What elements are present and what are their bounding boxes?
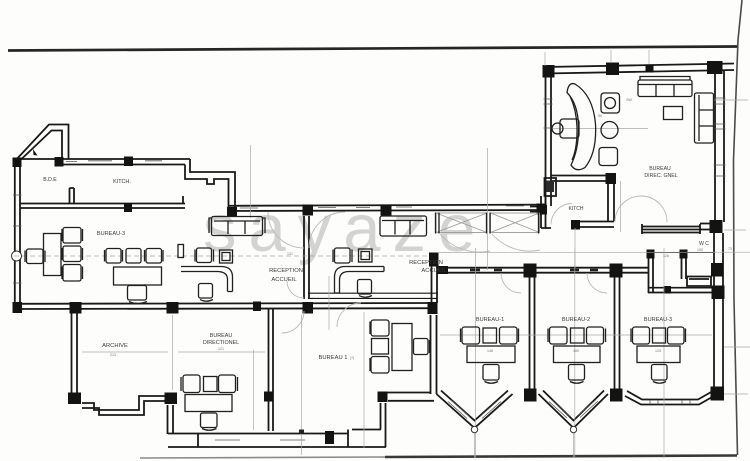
svg-text:(?): (?): [350, 356, 354, 360]
svg-text:SW: SW: [626, 98, 632, 102]
svg-text:ACCUEIL: ACCUEIL: [421, 268, 447, 274]
svg-text:BUREAU-2: BUREAU-2: [562, 317, 590, 323]
svg-text:BUREAU-1: BUREAU-1: [476, 317, 504, 323]
svg-text:126: 126: [663, 254, 669, 258]
svg-text:BUREAU-3: BUREAU-3: [644, 317, 672, 323]
svg-text:BUREAU: BUREAU: [649, 166, 671, 172]
svg-text:DIREC. GNEL: DIREC. GNEL: [644, 173, 677, 179]
svg-text:B.D.E: B.D.E: [43, 177, 57, 183]
svg-text:RECEPTION: RECEPTION: [269, 268, 303, 274]
svg-text:73: 73: [728, 247, 732, 251]
svg-text:131: 131: [287, 252, 293, 256]
svg-text:KITCH.: KITCH.: [113, 179, 131, 185]
svg-text:148: 148: [487, 349, 493, 353]
svg-text:BUREAU 1: BUREAU 1: [319, 355, 348, 361]
svg-text:BUREAU: BUREAU: [210, 333, 233, 339]
svg-text:59: 59: [598, 114, 602, 118]
svg-text:BUREAU-3: BUREAU-3: [97, 231, 125, 237]
svg-text:W C: W C: [699, 241, 709, 247]
svg-text:121: 121: [218, 347, 224, 351]
svg-text:125: 125: [655, 349, 661, 353]
svg-text:180: 180: [573, 349, 579, 353]
svg-text:DIRECTIONEL: DIRECTIONEL: [203, 340, 239, 346]
svg-text:ARCHIVE: ARCHIVE: [102, 343, 128, 349]
svg-text:100: 100: [697, 248, 703, 252]
svg-text:213: 213: [110, 353, 116, 357]
svg-text:RECEPTION: RECEPTION: [409, 260, 443, 266]
svg-text:ACCUEIL: ACCUEIL: [271, 277, 297, 283]
svg-text:KITCH: KITCH: [569, 206, 584, 212]
